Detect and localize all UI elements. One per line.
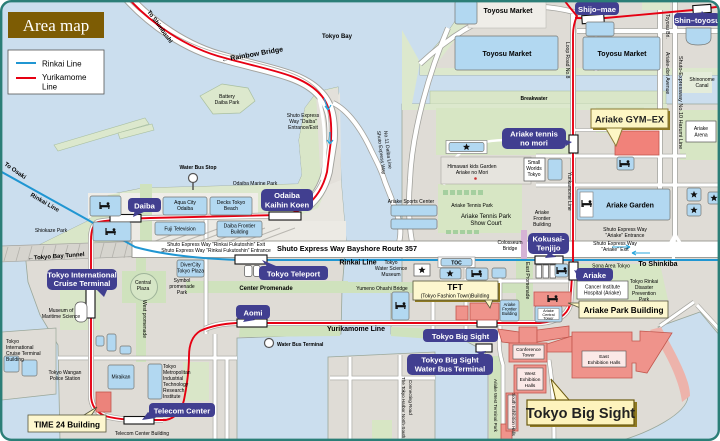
svg-text:Odaiba Marine Park: Odaiba Marine Park — [233, 181, 278, 187]
svg-text:Tenjijo: Tenjijo — [537, 244, 561, 253]
svg-text:Arena: Arena — [694, 133, 708, 139]
svg-text:Yurikamome Line: Yurikamome Line — [566, 172, 572, 211]
svg-text:Ariake Garden: Ariake Garden — [606, 203, 654, 210]
svg-text:Conference: Conference — [516, 347, 541, 353]
svg-text:Ariake: Ariake — [694, 126, 708, 132]
svg-text:Shiokaze Park: Shiokaze Park — [35, 228, 68, 234]
svg-text:Tokyo Big Sight: Tokyo Big Sight — [421, 356, 479, 365]
svg-text:Yurikamome Line: Yurikamome Line — [327, 326, 385, 333]
svg-text:Ariake Sports Center: Ariake Sports Center — [388, 199, 435, 205]
svg-text:Cruise Terminal: Cruise Terminal — [54, 279, 111, 288]
svg-text:The Tokyo Harbor North-South: The Tokyo Harbor North-South — [401, 377, 406, 439]
svg-text:Area map: Area map — [23, 16, 90, 35]
svg-text:Show Court: Show Court — [470, 221, 502, 227]
svg-text:Center Promenade: Center Promenade — [239, 286, 293, 292]
svg-text:Institute: Institute — [163, 394, 181, 400]
svg-text:Rinkai Line: Rinkai Line — [42, 60, 82, 69]
svg-text:Ariake Tennis Park: Ariake Tennis Park — [461, 214, 512, 220]
svg-text:West: West — [525, 371, 537, 377]
svg-text:Tokyo Big Sight: Tokyo Big Sight — [526, 406, 635, 422]
svg-text:Halls: Halls — [525, 383, 536, 389]
svg-text:Tower: Tower — [543, 317, 554, 321]
svg-text:Toyosu Market: Toyosu Market — [484, 8, 534, 15]
svg-text:“Ariake” Entrance: “Ariake” Entrance — [606, 233, 645, 239]
svg-text:Shuto Express Way Bayshore Rou: Shuto Express Way Bayshore Route 357 — [277, 244, 417, 253]
svg-text:Building: Building — [231, 230, 249, 236]
svg-text:Police Station: Police Station — [50, 376, 81, 382]
svg-text:Ariake tennis: Ariake tennis — [510, 130, 558, 139]
svg-text:Tokyo Big Sight: Tokyo Big Sight — [432, 332, 490, 341]
svg-text:Ariake West Terminal Park: Ariake West Terminal Park — [493, 379, 498, 433]
svg-text:Shijo–mae: Shijo–mae — [578, 5, 616, 14]
svg-text:Water Bus Stop: Water Bus Stop — [179, 165, 216, 171]
svg-text:Shin–toyosu: Shin–toyosu — [674, 16, 720, 25]
svg-text:Exhibition Halls: Exhibition Halls — [588, 360, 621, 366]
svg-text:Yurikamome: Yurikamome — [42, 73, 87, 82]
svg-text:Exhibition: Exhibition — [520, 377, 541, 383]
svg-text:Beach: Beach — [224, 206, 238, 212]
svg-text:Toyosu Bri.: Toyosu Bri. — [664, 14, 670, 39]
svg-text:Tokyo Plaza: Tokyo Plaza — [177, 269, 204, 275]
svg-text:Loop Road No.8: Loop Road No.8 — [564, 42, 570, 79]
svg-text:Museum: Museum — [381, 272, 400, 278]
svg-text:South Exhibition Halls: South Exhibition Halls — [511, 393, 516, 437]
svg-text:Rinkai Line: Rinkai Line — [339, 260, 376, 267]
svg-text:Shuto-Expressway No.10 Harumi: Shuto-Expressway No.10 Harumi Line — [677, 56, 683, 149]
svg-text:Building: Building — [6, 357, 24, 363]
svg-text:Ariake Tennis Park: Ariake Tennis Park — [451, 203, 493, 209]
svg-text:Line: Line — [42, 83, 58, 92]
svg-text:East: East — [599, 354, 609, 360]
svg-text:Tokyo Bay: Tokyo Bay — [322, 34, 353, 40]
svg-text:Ariake GYM–EX: Ariake GYM–EX — [595, 115, 665, 125]
svg-text:Water Bus Terminal: Water Bus Terminal — [277, 342, 324, 348]
svg-text:Maritime Science: Maritime Science — [42, 314, 81, 320]
svg-text:Shuto Express Way “Rinkai Fuku: Shuto Express Way “Rinkai Fukutoshin” En… — [161, 248, 271, 254]
svg-text:Odaiba: Odaiba — [177, 206, 193, 212]
svg-text:Odaiba: Odaiba — [274, 191, 301, 200]
svg-text:Miraikan: Miraikan — [112, 375, 131, 381]
svg-text:TIME 24 Building: TIME 24 Building — [34, 421, 100, 430]
svg-text:(Tokyo Fashion Town)Building: (Tokyo Fashion Town)Building — [421, 294, 490, 300]
svg-text:Ariake: Ariake — [583, 271, 606, 280]
svg-text:Kaihin Koen: Kaihin Koen — [265, 201, 310, 210]
svg-text:Ariake Park Building: Ariake Park Building — [583, 306, 663, 315]
svg-text:Tokyo: Tokyo — [527, 172, 540, 178]
svg-text:Entrance/Exit: Entrance/Exit — [288, 125, 318, 131]
svg-text:Kokusai-: Kokusai- — [532, 235, 565, 244]
svg-text:Water Bus Terminal: Water Bus Terminal — [415, 365, 485, 374]
svg-text:no mori: no mori — [520, 139, 548, 148]
svg-text:Ariake-dori Avenue: Ariake-dori Avenue — [664, 52, 670, 94]
svg-text:Daiba: Daiba — [134, 202, 155, 211]
svg-text:Ariake no Mori: Ariake no Mori — [456, 170, 488, 176]
svg-text:Telecom Center Building: Telecom Center Building — [115, 431, 169, 437]
svg-text:Hospital (Ariake): Hospital (Ariake) — [584, 291, 621, 297]
svg-text:Toyosu Market: Toyosu Market — [598, 51, 648, 58]
svg-text:East Promenade: East Promenade — [524, 262, 530, 299]
svg-text:West promenade: West promenade — [141, 300, 147, 338]
svg-text:Toyosu Market: Toyosu Market — [483, 51, 533, 58]
svg-text:“Ariake” Exit: “Ariake” Exit — [601, 247, 629, 253]
svg-text:Plaza: Plaza — [137, 286, 150, 292]
svg-text:Connecting Road: Connecting Road — [408, 380, 413, 415]
svg-text:Aomi: Aomi — [244, 309, 263, 318]
svg-text:Fuji Television: Fuji Television — [164, 227, 196, 233]
svg-text:Daiba Park: Daiba Park — [215, 100, 240, 106]
svg-text:TOC: TOC — [451, 261, 462, 267]
svg-text:Canal: Canal — [695, 83, 708, 89]
svg-text:Tower: Tower — [522, 353, 535, 359]
svg-text:Breakwater: Breakwater — [521, 96, 548, 102]
svg-text:Building: Building — [502, 311, 518, 316]
svg-text:Building: Building — [533, 222, 551, 228]
svg-text:Yumeno Ohashi Bridge: Yumeno Ohashi Bridge — [356, 286, 408, 292]
svg-text:Tokyo Teleport: Tokyo Teleport — [267, 270, 321, 279]
svg-text:TFT: TFT — [447, 282, 463, 292]
svg-text:Park: Park — [177, 290, 188, 296]
svg-text:Bridge: Bridge — [503, 246, 518, 252]
svg-text:Telecom Center: Telecom Center — [154, 407, 210, 416]
svg-text:To Shinkiba: To Shinkiba — [638, 261, 677, 268]
